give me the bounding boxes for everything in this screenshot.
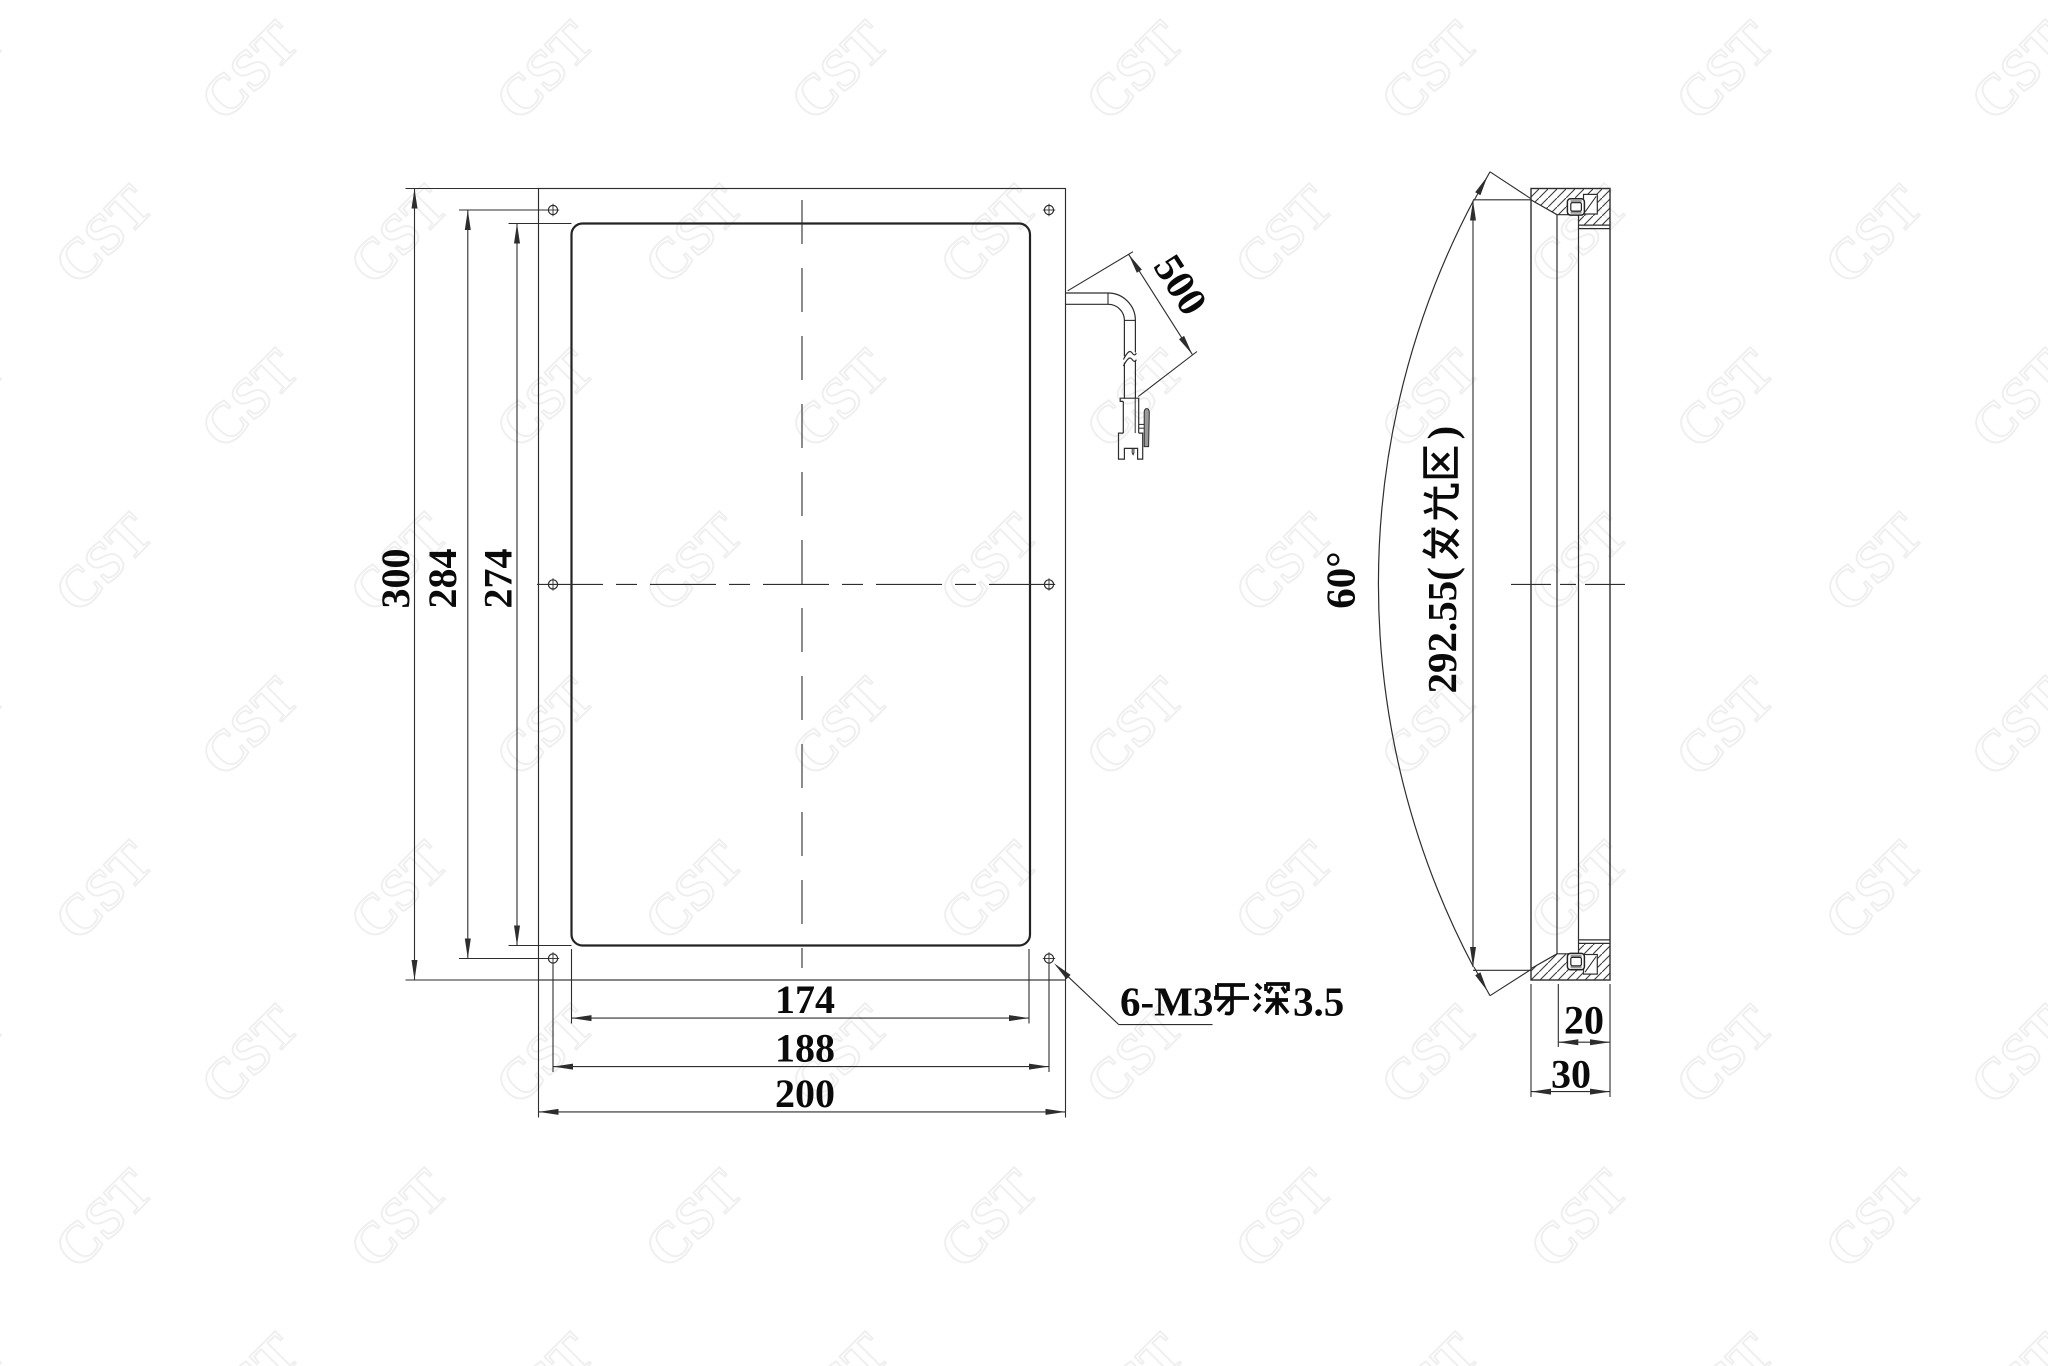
svg-text:200: 200 (775, 1071, 835, 1116)
svg-text:3.5: 3.5 (1293, 979, 1344, 1025)
svg-text:30: 30 (1551, 1052, 1591, 1097)
svg-text:): ) (1419, 426, 1465, 440)
svg-text:60°: 60° (1317, 551, 1363, 608)
svg-text:20: 20 (1564, 998, 1604, 1043)
svg-text:274: 274 (476, 549, 521, 609)
svg-text:292.55(: 292.55( (1419, 567, 1465, 693)
svg-text:174: 174 (775, 977, 835, 1022)
svg-text:284: 284 (420, 549, 465, 609)
svg-text:6-M3: 6-M3 (1120, 979, 1213, 1025)
svg-text:300: 300 (373, 549, 418, 609)
svg-text:188: 188 (775, 1025, 835, 1070)
